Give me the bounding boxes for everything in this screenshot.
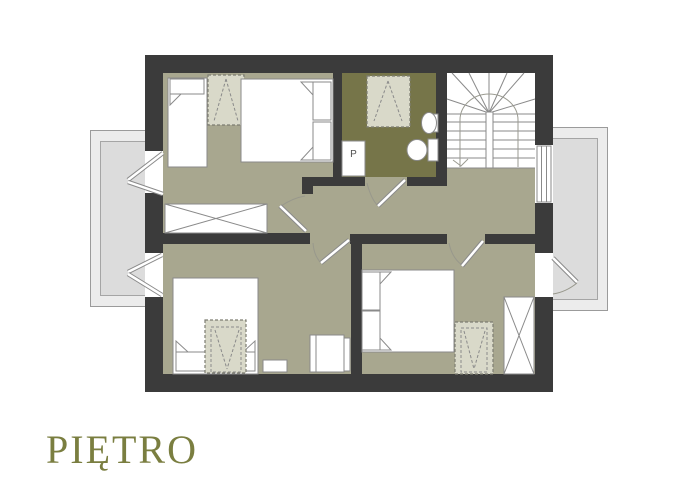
- double-bed-icon: [362, 270, 454, 352]
- door-swing-icon: [128, 153, 163, 194]
- door-swing-icon: [553, 258, 577, 294]
- double-bed-icon: [241, 79, 333, 162]
- bedside-table-icon: [263, 360, 287, 372]
- floor-plan: P PIĘTRO: [0, 0, 700, 500]
- crossed-cabinet-icon: [165, 204, 267, 233]
- door-swing-icon: [449, 241, 483, 266]
- door-swing-icon: [367, 180, 405, 206]
- shower-icon: [367, 76, 410, 127]
- wardrobe-dashed-icon: [205, 320, 246, 373]
- plan-symbols: [0, 0, 700, 500]
- crossed-cabinet-icon: [504, 297, 534, 374]
- toilet-icon: [407, 139, 438, 161]
- door-swing-icon: [313, 240, 349, 263]
- sink-icon: [422, 113, 439, 134]
- door-swing-icon: [280, 196, 306, 231]
- door-swing-icon: [128, 255, 162, 295]
- staircase-icon: [447, 73, 535, 168]
- window-icon: [537, 146, 551, 202]
- washing-machine-label: P: [342, 149, 365, 160]
- single-bed-icon: [168, 78, 207, 167]
- wardrobe-dashed-icon: [455, 322, 493, 374]
- armchair-icon: [310, 335, 350, 372]
- page-title: PIĘTRO: [46, 426, 198, 473]
- wardrobe-dashed-icon: [208, 75, 244, 125]
